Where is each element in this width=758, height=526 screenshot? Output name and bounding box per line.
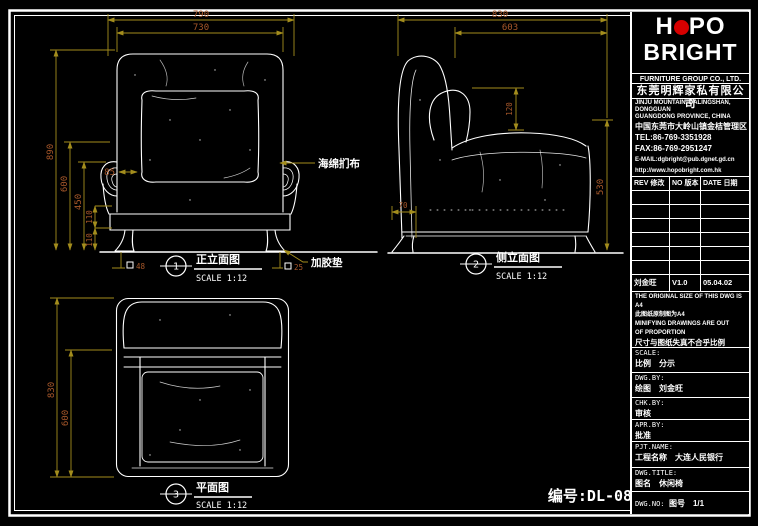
revision-row-empty	[632, 247, 749, 261]
fabric-speckles	[134, 69, 265, 200]
tel-line: TEL:86-769-3351928	[632, 132, 749, 143]
side-view-title: 2 侧立面图 SCALE 1:12	[460, 250, 562, 282]
dim-back-offset: 120	[505, 102, 514, 116]
dim-seat-upper: 110	[85, 210, 94, 224]
scale-cn: 比例	[635, 358, 651, 369]
chk-by-cn: 审核	[635, 408, 651, 419]
address-line-1: JINJU MOUNTAIN, DALINGSHAN, DONGGUAN	[635, 100, 746, 114]
cad-drawing-sheet: 790 730 890 600 450 110 110 85 48 25 海绵扪…	[0, 0, 758, 526]
front-dimension-text: 790 730 890 600 450 110 110 85 48 25 海绵扪…	[46, 10, 360, 272]
note-line: 此图纸原制图为A4	[635, 311, 746, 320]
address-line-2: GUANGDONG PROVINCE, CHINA	[635, 114, 746, 121]
company-address-cn: 中国东莞市大岭山镇金桔管理区	[632, 121, 749, 132]
pjt-name-cn: 工程名称	[635, 452, 667, 463]
title-block-panel: HPO BRIGHT FURNITURE GROUP CO., LTD. 东莞明…	[630, 12, 749, 514]
side-elevation-view: 830 603 120 530 70 2 侧立面图 SCALE 1:12	[388, 10, 623, 282]
logo-word1-a: H	[655, 13, 673, 40]
fabric-speckles	[419, 99, 560, 210]
view-scale: SCALE 1:12	[196, 501, 247, 511]
plan-view-title: 3 平面图 SCALE 1:12	[160, 481, 252, 511]
website-line: http://www.hopobright.com.hk	[632, 165, 749, 176]
field-checked-by: CHK.BY: 审核	[632, 398, 749, 420]
company-name-en: FURNITURE GROUP CO., LTD.	[632, 74, 749, 84]
upholstery-annotation: 海绵扪布	[318, 157, 360, 170]
dim-height-back: 600	[60, 176, 70, 192]
chk-by-label: CHK.BY:	[635, 399, 746, 408]
logo-word2: BRIGHT	[635, 40, 746, 64]
dim-leg-inset: 70	[398, 201, 408, 210]
scale-label: SCALE:	[635, 349, 746, 358]
square-symbol-right-leg	[285, 263, 291, 269]
company-name-cn: 东莞明辉家私有限公司	[632, 84, 749, 99]
rev-entry-date: 05.04.02	[700, 275, 749, 291]
dim-height-arm: 450	[74, 194, 84, 210]
dwg-no-label: DWG.NO:	[635, 500, 665, 508]
pjt-name-value: 大连人民银行	[675, 452, 723, 463]
note-line: MINIFYING DRAWINGS ARE OUT	[635, 320, 746, 329]
view-scale: SCALE 1:12	[196, 274, 247, 284]
dim-depth-outer: 830	[492, 10, 508, 20]
dim-leg-right: 25	[294, 263, 303, 272]
view-number: 2	[473, 260, 479, 271]
dim-depth-inner: 603	[502, 23, 518, 33]
plan-view: 830 600 3 平面图 SCALE 1:12	[47, 298, 289, 511]
field-drawing-title: DWG.TITLE: 图名休闲椅	[632, 468, 749, 492]
rev-entry-name: 刘金旺	[632, 275, 669, 291]
apr-by-label: APR.BY:	[635, 421, 746, 430]
dim-width-outer: 790	[193, 10, 209, 20]
revision-row-empty	[632, 191, 749, 205]
note-line-cn: 尺寸与图纸失真不合乎比例	[635, 338, 746, 347]
fabric-speckles	[149, 314, 250, 455]
revision-table-header: REV 修改 NO 版本 DATE 日期	[632, 176, 749, 191]
email-line: E-MAIL:dgbright@pub.dgnet.gd.cn	[632, 154, 749, 165]
notes-block: THE ORIGINAL SIZE OF THIS DWG IS A4 此图纸原…	[632, 292, 749, 348]
dim-arm-width: 85	[104, 168, 115, 178]
rev-header-rev: REV 修改	[632, 177, 669, 190]
field-approved-by: APR.BY: 批准	[632, 420, 749, 442]
revision-row-entry: 刘金旺 V1.0 05.04.02	[632, 275, 749, 292]
plan-dimensions	[50, 298, 114, 477]
dwg-by-cn: 绘图	[635, 383, 651, 394]
front-elevation-view: 790 730 890 600 450 110 110 85 48 25 海绵扪…	[46, 10, 377, 284]
revision-row-empty	[632, 233, 749, 247]
view-number: 1	[173, 262, 179, 273]
view-number: 3	[173, 490, 179, 501]
dim-depth-outer: 830	[47, 382, 57, 398]
front-view-title: 1 正立面图 SCALE 1:12	[160, 252, 262, 284]
field-drawing-number: DWG.NO: 图号1/1	[632, 492, 749, 507]
fax-line: FAX:86-769-2951247	[632, 143, 749, 154]
scale-value: 分示	[659, 358, 675, 369]
square-symbol-left-leg	[127, 262, 133, 268]
logo-red-dot-icon	[674, 20, 689, 35]
plan-chair-drawing	[117, 299, 289, 477]
view-title: 正立面图	[196, 252, 240, 266]
dwg-title-value: 休闲椅	[659, 478, 683, 489]
front-chair-drawing	[100, 54, 377, 252]
dwg-no-cn: 图号	[669, 498, 685, 509]
dim-leg-left: 48	[136, 262, 146, 271]
glide-pad-annotation: 加胶垫	[310, 256, 343, 269]
apr-by-cn: 批准	[635, 430, 651, 441]
dim-width-inner: 730	[193, 23, 209, 33]
view-scale: SCALE 1:12	[496, 272, 547, 282]
rev-header-no: NO 版本	[669, 177, 700, 190]
dwg-title-cn: 图名	[635, 478, 651, 489]
drawing-number: 编号:DL-08	[548, 487, 632, 505]
note-line: OF PROPORTION	[635, 329, 746, 338]
revision-row-empty	[632, 261, 749, 275]
dwg-title-label: DWG.TITLE:	[635, 469, 746, 478]
dwg-by-value: 刘金旺	[659, 383, 683, 394]
revision-row-empty	[632, 219, 749, 233]
dim-height-total: 890	[46, 144, 56, 160]
company-logo: HPO BRIGHT	[632, 12, 749, 74]
dwg-by-label: DWG.BY:	[635, 374, 746, 383]
field-drawn-by: DWG.BY: 绘图刘金旺	[632, 373, 749, 398]
dwg-no-value: 1/1	[693, 498, 704, 509]
field-scale: SCALE: 比例分示	[632, 348, 749, 373]
company-address-en: JINJU MOUNTAIN, DALINGSHAN, DONGGUAN GUA…	[632, 99, 749, 121]
logo-word1-b: PO	[689, 13, 726, 40]
note-line: THE ORIGINAL SIZE OF THIS DWG IS A4	[635, 293, 746, 311]
dim-depth-seat: 600	[61, 410, 71, 426]
view-title: 平面图	[196, 481, 229, 494]
view-title: 侧立面图	[496, 250, 540, 264]
side-dimensions	[392, 14, 613, 250]
rev-header-date: DATE 日期	[700, 177, 749, 190]
pjt-name-label: PJT.NAME:	[635, 443, 746, 452]
dim-seat-lower: 110	[85, 233, 94, 247]
plan-dimension-text: 830 600	[47, 382, 71, 426]
dim-height-side: 530	[596, 179, 606, 195]
field-project-name: PJT.NAME: 工程名称大连人民银行	[632, 442, 749, 468]
revision-row-empty	[632, 205, 749, 219]
rev-entry-version: V1.0	[669, 275, 700, 291]
side-chair-drawing	[388, 56, 623, 253]
